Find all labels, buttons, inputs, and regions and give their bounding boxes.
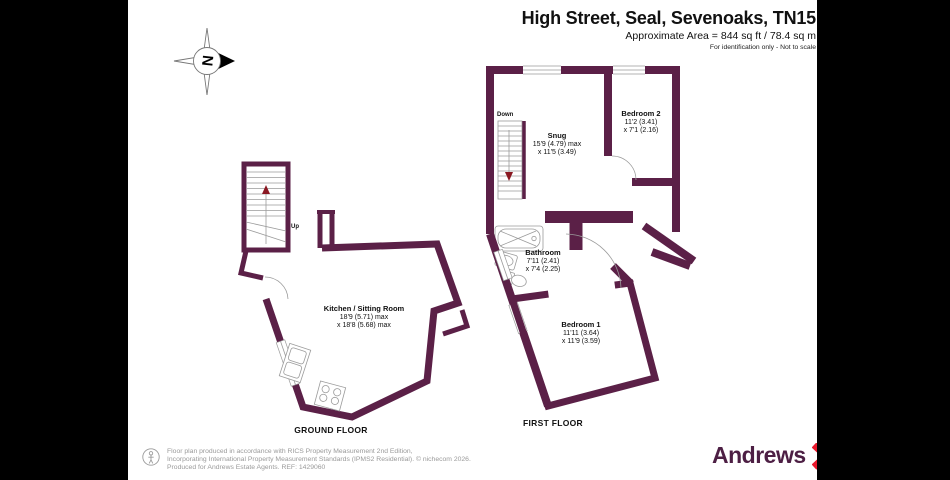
- bedroom1-room-label: Bedroom 1 11'11 (3.64) x 11'9 (3.59): [561, 321, 600, 347]
- first-floor-label: FIRST FLOOR: [523, 418, 583, 428]
- stove-icon: [314, 381, 345, 411]
- person-icon: [143, 449, 159, 465]
- snug-room-label: Snug 15'9 (4.79) max x 11'5 (3.49): [533, 132, 581, 158]
- disclaimer: For identification only - Not to scale: [522, 43, 816, 52]
- ground-stair-arrow: [262, 185, 270, 194]
- bedroom2-room-label: Bedroom 2 11'2 (3.41) x 7'1 (2.16): [621, 110, 660, 136]
- kitchen-room-label: Kitchen / Sitting Room 18'9 (5.71) max x…: [324, 305, 404, 331]
- first-stairs-label: Down: [497, 112, 513, 118]
- compass-north-letter: N: [198, 54, 216, 67]
- footer-line-3: Produced for Andrews Estate Agents. REF:…: [167, 464, 471, 472]
- ground-floor-plan: [241, 164, 467, 417]
- first-stairwell: [498, 121, 522, 199]
- ground-stairs-label: Up: [291, 224, 299, 230]
- first-floor-plan: [486, 64, 694, 406]
- andrews-logo-text: Andrews: [712, 442, 806, 469]
- bedroom2-door-arc: [612, 156, 636, 180]
- floorplan-page: High Street, Seal, Sevenoaks, TN15 Appro…: [0, 0, 950, 480]
- bathroom-room-label: Bathroom 7'11 (2.41) x 7'4 (2.25): [525, 249, 560, 275]
- footer-line-1: Floor plan produced in accordance with R…: [167, 448, 471, 456]
- page-title: High Street, Seal, Sevenoaks, TN15: [522, 8, 816, 29]
- ground-door-arc: [265, 277, 288, 299]
- left-black-bar: [0, 0, 128, 480]
- first-window-1: [523, 64, 561, 76]
- ground-floor-label: GROUND FLOOR: [294, 425, 367, 435]
- andrews-logo: Andrews: [712, 442, 830, 471]
- right-black-bar: [817, 0, 950, 480]
- floorplan-drawing: [0, 0, 950, 480]
- header: High Street, Seal, Sevenoaks, TN15 Appro…: [522, 8, 816, 52]
- area-line: Approximate Area = 844 sq ft / 78.4 sq m: [522, 29, 816, 43]
- footer-line-2: Incorporating International Property Mea…: [167, 456, 471, 464]
- footer-disclaimer: Floor plan produced in accordance with R…: [167, 448, 471, 472]
- first-window-2: [613, 64, 645, 76]
